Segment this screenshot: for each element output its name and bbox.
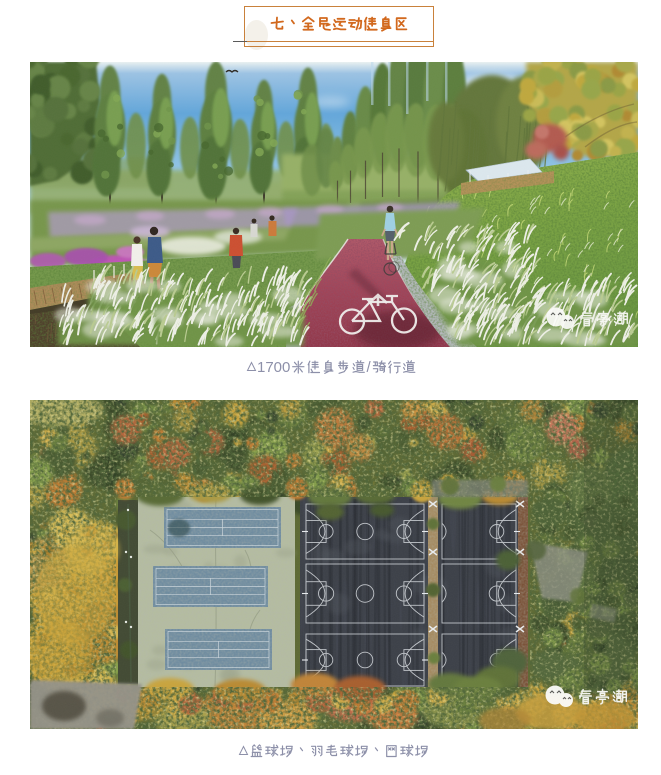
svg-text:/: /	[367, 359, 372, 376]
svg-text:1700: 1700	[257, 359, 290, 376]
